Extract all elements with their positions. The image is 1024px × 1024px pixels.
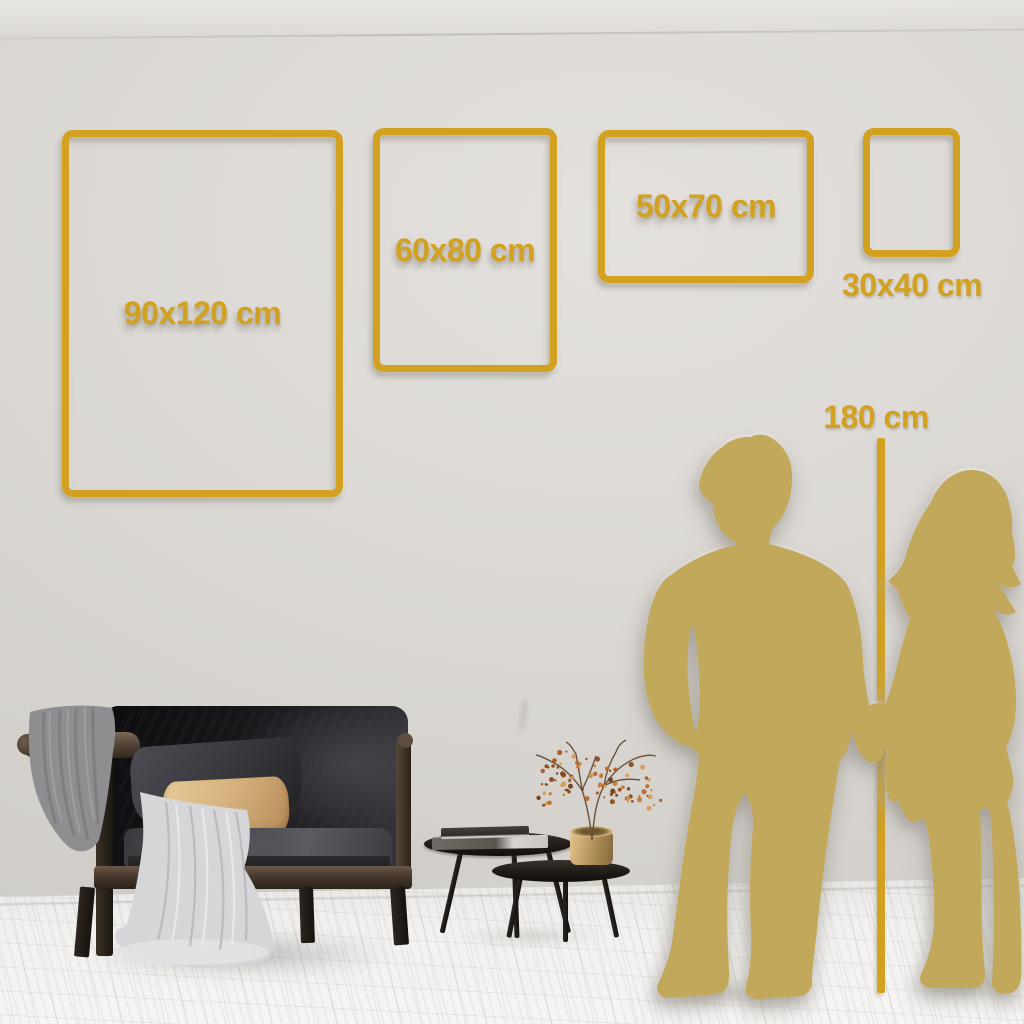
size-label-30x40: 30x40 cm — [830, 267, 994, 304]
size-frame-60x80: 60x80 cm — [373, 128, 557, 372]
size-frame-30x40 — [863, 128, 960, 257]
couple-silhouette — [600, 420, 1024, 1020]
wall-smudge — [519, 700, 528, 730]
table-leg — [563, 880, 568, 942]
room-scene: 90x120 cm 60x80 cm 50x70 cm 30x40 cm 180… — [0, 0, 1024, 1024]
white-throw-blanket — [100, 780, 320, 975]
size-label-50x70: 50x70 cm — [636, 188, 776, 225]
woman-silhouette — [858, 470, 1022, 994]
sofa-frame-knob-right — [398, 733, 413, 748]
size-frame-90x120: 90x120 cm — [62, 130, 343, 497]
size-label-90x120: 90x120 cm — [124, 295, 281, 332]
size-label-60x80: 60x80 cm — [395, 232, 535, 269]
man-silhouette — [644, 435, 884, 999]
size-frame-50x70: 50x70 cm — [598, 130, 814, 283]
